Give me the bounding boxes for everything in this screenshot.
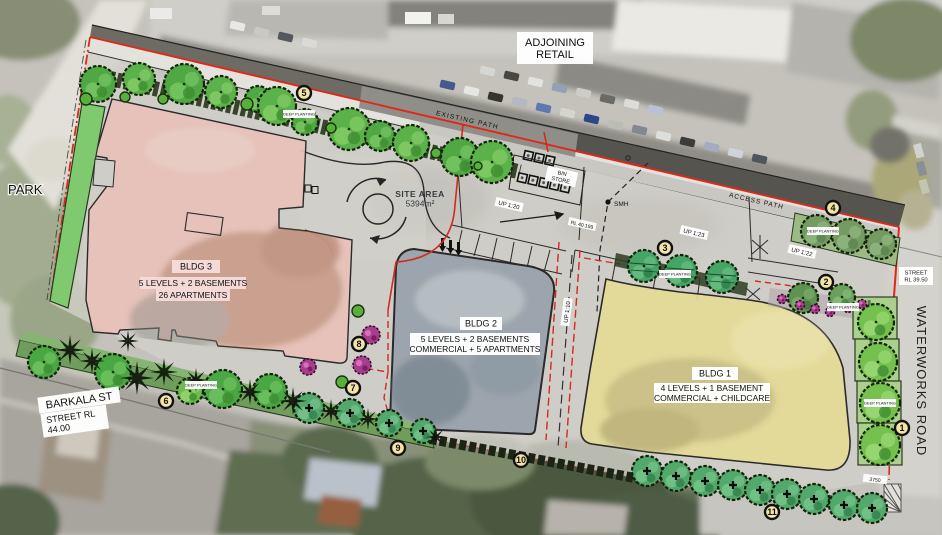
svg-text:5394m²: 5394m²	[406, 199, 435, 209]
svg-text:9: 9	[395, 443, 400, 453]
svg-text:5 LEVELS + 2 BASEMENTS: 5 LEVELS + 2 BASEMENTS	[421, 334, 530, 344]
svg-text:SMH: SMH	[614, 201, 629, 208]
svg-text:DEEP PLANTING: DEEP PLANTING	[659, 271, 691, 276]
svg-text:2: 2	[823, 277, 828, 287]
svg-text:DEEP PLANTING: DEEP PLANTING	[283, 111, 315, 116]
svg-text:ADJOINING: ADJOINING	[525, 37, 585, 49]
svg-text:RETAIL: RETAIL	[536, 49, 574, 61]
svg-text:BLDG 1: BLDG 1	[699, 369, 731, 379]
svg-text:PARK: PARK	[8, 182, 43, 197]
svg-text:DEEP PLANTING: DEEP PLANTING	[185, 382, 217, 387]
svg-text:11: 11	[767, 507, 777, 517]
svg-text:COMMERCIAL + 5 APARTMENTS: COMMERCIAL + 5 APARTMENTS	[410, 344, 541, 354]
svg-text:DEEP PLANTING: DEEP PLANTING	[827, 304, 859, 309]
svg-text:BLDG 3: BLDG 3	[180, 262, 212, 272]
svg-text:5: 5	[301, 88, 306, 98]
svg-text:1: 1	[899, 423, 904, 433]
svg-text:DEEP PLANTING: DEEP PLANTING	[807, 228, 839, 233]
svg-text:4 LEVELS + 1 BASEMENT: 4 LEVELS + 1 BASEMENT	[661, 383, 764, 393]
svg-text:8: 8	[356, 339, 361, 349]
svg-text:DEEP PLANTING: DEEP PLANTING	[864, 400, 896, 405]
svg-text:10: 10	[516, 455, 526, 465]
svg-text:COMMERCIAL + CHILDCARE: COMMERCIAL + CHILDCARE	[654, 393, 770, 403]
svg-text:5 LEVELS + 2 BASEMENTS: 5 LEVELS + 2 BASEMENTS	[139, 278, 248, 288]
svg-text:STREET: STREET	[905, 271, 928, 277]
svg-text:RL 39.50: RL 39.50	[904, 278, 927, 284]
svg-text:3: 3	[662, 243, 667, 253]
svg-text:BLDG 2: BLDG 2	[465, 319, 497, 329]
svg-text:26 APARTMENTS: 26 APARTMENTS	[159, 290, 228, 300]
svg-text:3750: 3750	[869, 477, 881, 484]
svg-text:WATERWORKS ROAD: WATERWORKS ROAD	[914, 306, 929, 457]
svg-text:6: 6	[163, 396, 168, 406]
svg-text:SITE AREA: SITE AREA	[395, 189, 445, 199]
svg-text:4: 4	[830, 203, 835, 213]
svg-text:7: 7	[350, 383, 355, 393]
